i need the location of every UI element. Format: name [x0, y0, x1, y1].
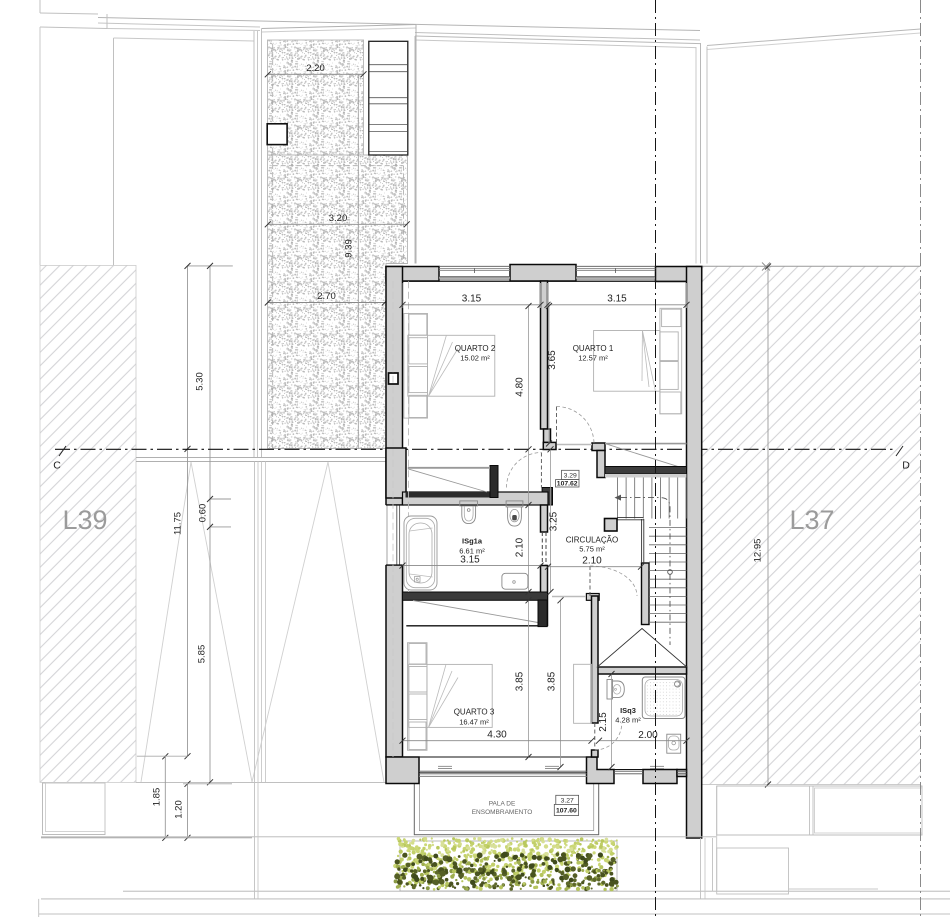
svg-text:5.30: 5.30: [195, 372, 206, 391]
svg-text:3.29: 3.29: [564, 473, 577, 480]
svg-text:2.15: 2.15: [598, 712, 609, 732]
svg-text:D: D: [902, 460, 910, 472]
svg-text:CIRCULAÇÃO: CIRCULAÇÃO: [566, 536, 618, 545]
svg-text:4.80: 4.80: [515, 377, 526, 397]
svg-text:12.95: 12.95: [753, 539, 764, 563]
svg-text:12.57 m²: 12.57 m²: [578, 354, 608, 363]
svg-text:3.85: 3.85: [515, 671, 526, 691]
svg-text:3.27: 3.27: [561, 797, 574, 804]
svg-text:2.10: 2.10: [582, 556, 602, 567]
svg-text:C: C: [53, 460, 61, 472]
svg-text:9.39: 9.39: [344, 239, 355, 258]
svg-text:ISg1a: ISg1a: [462, 537, 483, 546]
svg-text:QUARTO 3: QUARTO 3: [454, 708, 495, 717]
svg-text:PALA DE: PALA DE: [489, 801, 516, 808]
svg-text:3.15: 3.15: [607, 294, 627, 305]
svg-text:2.70: 2.70: [317, 291, 336, 302]
svg-text:3.85: 3.85: [547, 671, 558, 691]
svg-text:5.85: 5.85: [196, 645, 207, 664]
svg-text:2.10: 2.10: [515, 537, 526, 557]
svg-text:ENSOMBRAMENTO: ENSOMBRAMENTO: [472, 809, 533, 816]
svg-text:L37: L37: [789, 505, 834, 535]
svg-text:QUARTO 2: QUARTO 2: [455, 344, 496, 353]
svg-text:QUARTO 1: QUARTO 1: [573, 344, 614, 353]
svg-text:107.62: 107.62: [557, 481, 578, 488]
svg-text:16.47 m²: 16.47 m²: [459, 718, 489, 727]
svg-text:107.60: 107.60: [556, 808, 577, 815]
svg-text:3.15: 3.15: [460, 555, 480, 566]
svg-text:15.02 m²: 15.02 m²: [460, 354, 490, 363]
svg-text:2.20: 2.20: [306, 63, 325, 74]
svg-text:4.28 m²: 4.28 m²: [615, 716, 641, 725]
svg-text:1.85: 1.85: [152, 788, 163, 807]
svg-text:5.75 m²: 5.75 m²: [579, 545, 605, 554]
svg-text:3.15: 3.15: [462, 294, 482, 305]
svg-text:L39: L39: [62, 505, 107, 535]
svg-text:0.60: 0.60: [197, 504, 208, 523]
svg-text:4.30: 4.30: [487, 730, 507, 741]
svg-text:11.75: 11.75: [173, 512, 184, 535]
svg-text:3.65: 3.65: [547, 350, 558, 370]
svg-text:3.20: 3.20: [329, 213, 348, 224]
svg-text:ISq3: ISq3: [620, 706, 636, 715]
svg-text:1.20: 1.20: [174, 800, 185, 819]
svg-text:6.61 m²: 6.61 m²: [459, 547, 485, 556]
svg-text:3.25: 3.25: [549, 511, 560, 531]
